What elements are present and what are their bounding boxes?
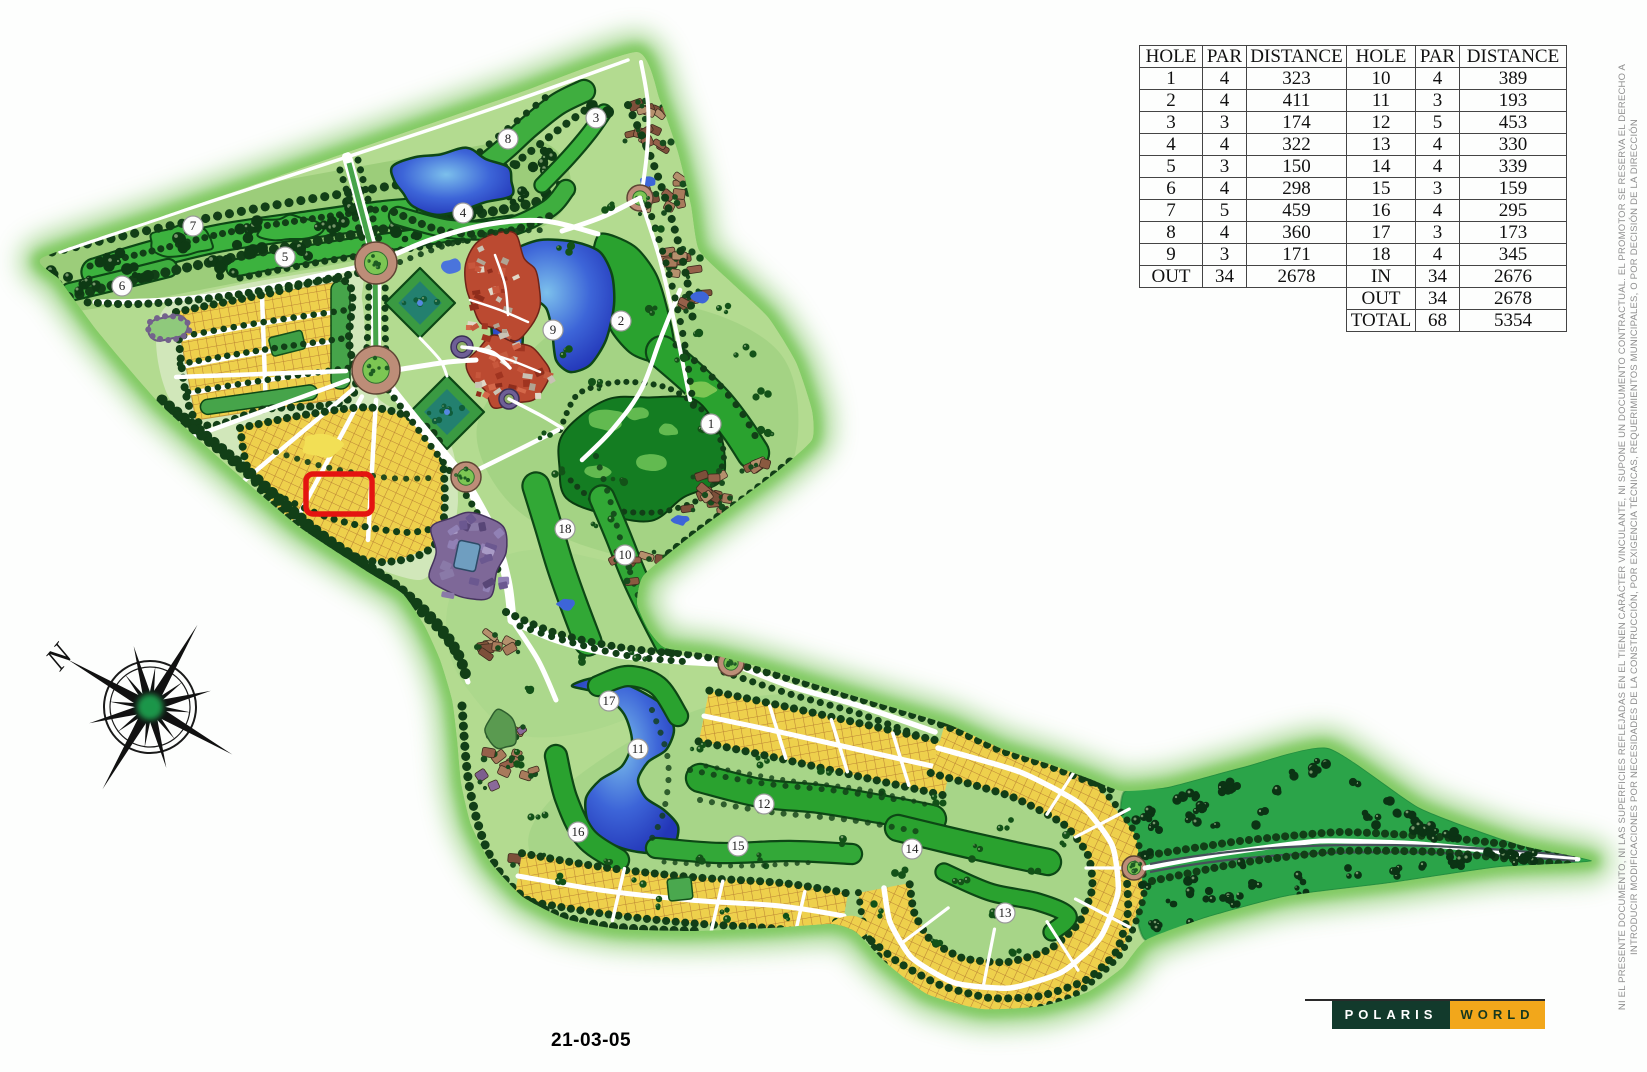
svg-text:18: 18 (559, 521, 572, 536)
svg-text:16: 16 (572, 824, 586, 839)
svg-text:10: 10 (619, 547, 632, 562)
svg-text:5: 5 (282, 249, 289, 264)
svg-text:8: 8 (505, 131, 512, 146)
svg-text:2: 2 (618, 313, 625, 328)
svg-text:N: N (37, 636, 80, 678)
svg-text:12: 12 (758, 796, 771, 811)
svg-text:9: 9 (550, 322, 557, 337)
svg-text:4: 4 (460, 205, 467, 220)
svg-text:1: 1 (708, 416, 715, 431)
svg-text:17: 17 (603, 693, 617, 708)
svg-text:6: 6 (119, 278, 126, 293)
svg-text:3: 3 (593, 110, 600, 125)
svg-text:14: 14 (906, 841, 920, 856)
svg-text:15: 15 (732, 838, 745, 853)
svg-text:13: 13 (999, 905, 1012, 920)
svg-text:11: 11 (632, 741, 645, 756)
svg-text:7: 7 (190, 218, 197, 233)
